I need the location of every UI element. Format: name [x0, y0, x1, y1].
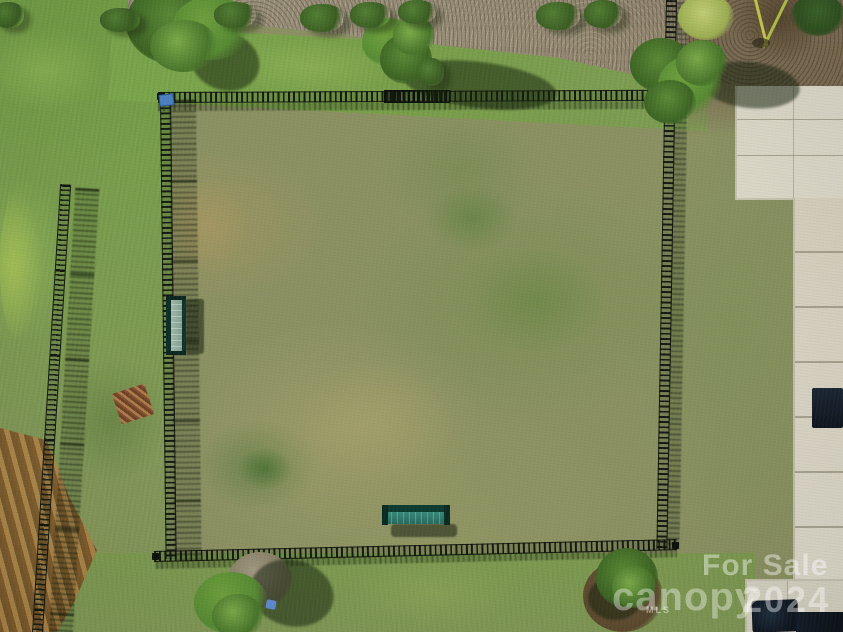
aerial-photo: For Sale canopy MLS 2024 — [0, 0, 843, 632]
watermark-brand: canopy — [612, 577, 758, 617]
watermark-mls: MLS — [646, 606, 671, 615]
watermark: For Sale canopy MLS 2024 — [0, 0, 843, 632]
watermark-year: 2024 — [742, 582, 830, 618]
